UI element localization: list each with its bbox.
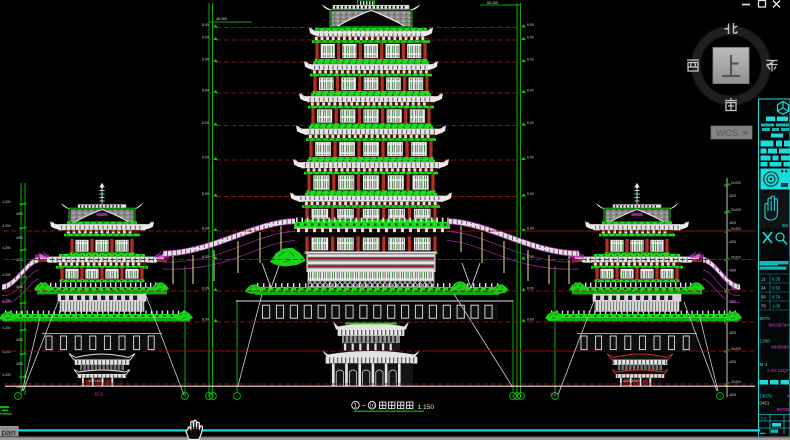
svg-text:84189744: 84189744 bbox=[769, 323, 790, 328]
svg-text:4200: 4200 bbox=[729, 269, 736, 273]
svg-text:5979: 5979 bbox=[760, 316, 771, 321]
svg-text:4200: 4200 bbox=[16, 236, 23, 240]
svg-text:0.35: 0.35 bbox=[772, 277, 781, 282]
svg-text:8.00: 8.00 bbox=[527, 121, 534, 125]
svg-text:4200: 4200 bbox=[729, 240, 736, 244]
svg-text:pan: pan bbox=[2, 428, 16, 438]
svg-text:8.00: 8.00 bbox=[527, 89, 534, 93]
svg-text:4200: 4200 bbox=[729, 360, 736, 364]
svg-text:8.00: 8.00 bbox=[527, 58, 534, 62]
svg-text:24.000: 24.000 bbox=[731, 347, 741, 351]
svg-text:8.00: 8.00 bbox=[202, 58, 209, 62]
svg-text:8.00: 8.00 bbox=[202, 36, 209, 40]
svg-text:24.000: 24.000 bbox=[731, 181, 741, 185]
svg-text:8.00: 8.00 bbox=[202, 23, 209, 27]
svg-text:8.00: 8.00 bbox=[527, 23, 534, 27]
svg-text:4.200: 4.200 bbox=[2, 373, 11, 377]
svg-text:1 2: 1 2 bbox=[761, 417, 766, 421]
svg-text:WCS: WCS bbox=[716, 128, 738, 139]
svg-text:8.00: 8.00 bbox=[527, 287, 534, 291]
svg-text:8.00: 8.00 bbox=[202, 192, 209, 196]
svg-text:24.000: 24.000 bbox=[731, 256, 741, 260]
svg-text:8.00: 8.00 bbox=[202, 89, 209, 93]
svg-text:1-40-12QT: 1-40-12QT bbox=[767, 368, 789, 373]
svg-text:JC-5: JC-5 bbox=[94, 392, 104, 397]
svg-text:8.00: 8.00 bbox=[202, 287, 209, 291]
svg-text:10: 10 bbox=[369, 403, 375, 409]
svg-text:24.000: 24.000 bbox=[731, 208, 741, 212]
svg-text:12: 12 bbox=[761, 277, 766, 282]
svg-text:0.50: 0.50 bbox=[772, 286, 781, 291]
svg-text:8.00: 8.00 bbox=[202, 156, 209, 160]
svg-text:24.000: 24.000 bbox=[731, 380, 741, 384]
svg-text:4200: 4200 bbox=[729, 393, 736, 397]
svg-text:8.00: 8.00 bbox=[527, 318, 534, 322]
svg-text:56: 56 bbox=[761, 295, 766, 300]
svg-text:34: 34 bbox=[761, 286, 766, 291]
svg-text:JC-5: JC-5 bbox=[549, 392, 559, 397]
svg-text:1.00: 1.00 bbox=[772, 304, 781, 309]
svg-text:4.200: 4.200 bbox=[2, 273, 11, 277]
svg-text:8.00: 8.00 bbox=[202, 318, 209, 322]
svg-text:0451: 0451 bbox=[760, 401, 770, 406]
svg-text:24.000: 24.000 bbox=[731, 227, 741, 231]
svg-text:1368: 1368 bbox=[760, 339, 771, 344]
svg-text:13679: 13679 bbox=[760, 394, 773, 399]
svg-text:~: ~ bbox=[362, 403, 366, 410]
svg-text:4.200: 4.200 bbox=[2, 200, 11, 204]
svg-text:8.00: 8.00 bbox=[202, 227, 209, 231]
svg-text:1:150: 1:150 bbox=[418, 404, 435, 411]
svg-text:48.500: 48.500 bbox=[216, 17, 227, 21]
svg-text:94798: 94798 bbox=[777, 407, 790, 412]
svg-text:8.00: 8.00 bbox=[202, 121, 209, 125]
svg-text:8.00: 8.00 bbox=[527, 156, 534, 160]
svg-text:4200: 4200 bbox=[16, 362, 23, 366]
svg-text:4.200: 4.200 bbox=[2, 246, 11, 250]
svg-text:8.00: 8.00 bbox=[527, 36, 534, 40]
svg-text:4200: 4200 bbox=[729, 331, 736, 335]
svg-text:8.00: 8.00 bbox=[527, 227, 534, 231]
svg-text:4200: 4200 bbox=[16, 212, 23, 216]
svg-text:55.350: 55.350 bbox=[487, 1, 498, 5]
svg-text:0.70: 0.70 bbox=[772, 295, 781, 300]
svg-text:78: 78 bbox=[761, 304, 766, 309]
svg-text:8.00: 8.00 bbox=[527, 192, 534, 196]
svg-text:5M: 5M bbox=[782, 223, 788, 228]
svg-text:M 4: M 4 bbox=[760, 362, 768, 367]
svg-text:4200: 4200 bbox=[729, 194, 736, 198]
svg-text:4.200: 4.200 bbox=[2, 224, 11, 228]
svg-text:4200 4200: 4200 4200 bbox=[88, 379, 104, 383]
svg-text:4200: 4200 bbox=[16, 338, 23, 342]
svg-text:4200 4200: 4200 4200 bbox=[623, 379, 639, 383]
svg-text:4200: 4200 bbox=[729, 221, 736, 225]
svg-text:4.200: 4.200 bbox=[2, 326, 11, 330]
svg-text:4045680: 4045680 bbox=[771, 345, 789, 350]
